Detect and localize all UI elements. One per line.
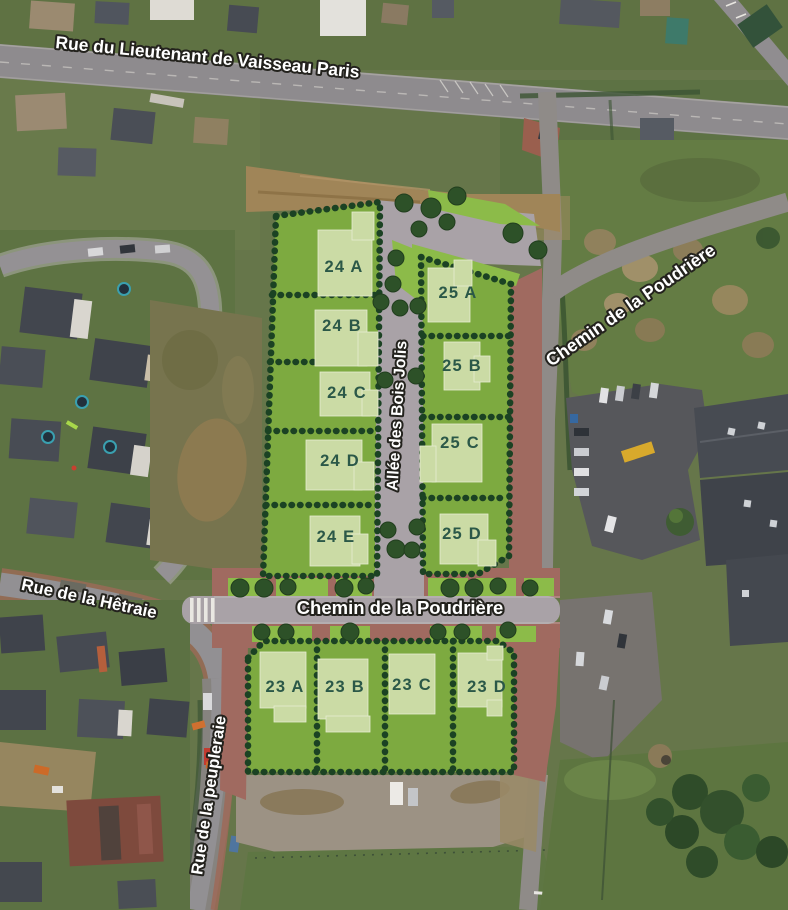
lot-label-24b: 24 B	[322, 317, 362, 335]
lot-label-24c: 24 C	[327, 384, 367, 402]
lot-label-25c: 25 C	[440, 434, 480, 452]
lot-label-23a: 23 A	[265, 678, 304, 696]
lot-label-23c: 23 C	[392, 676, 432, 694]
lot-label-25d: 25 D	[442, 525, 482, 543]
map-canvas: 24 A 24 B 24 C 24 D 24 E 25 A 25 B 25 C …	[0, 0, 788, 910]
lot-label-23b: 23 B	[325, 678, 365, 696]
lot-label-24e: 24 E	[317, 528, 356, 546]
lot-label-24a: 24 A	[324, 258, 363, 276]
street-label-chemin-de-la-poudriere-central: Chemin de la Poudrière	[297, 597, 504, 618]
lot-label-23d: 23 D	[467, 678, 507, 696]
lot-label-25b: 25 B	[442, 357, 482, 375]
lot-label-25a: 25 A	[438, 284, 477, 302]
aerial-development-plan: 24 A 24 B 24 C 24 D 24 E 25 A 25 B 25 C …	[0, 0, 788, 910]
lot-label-24d: 24 D	[320, 452, 360, 470]
